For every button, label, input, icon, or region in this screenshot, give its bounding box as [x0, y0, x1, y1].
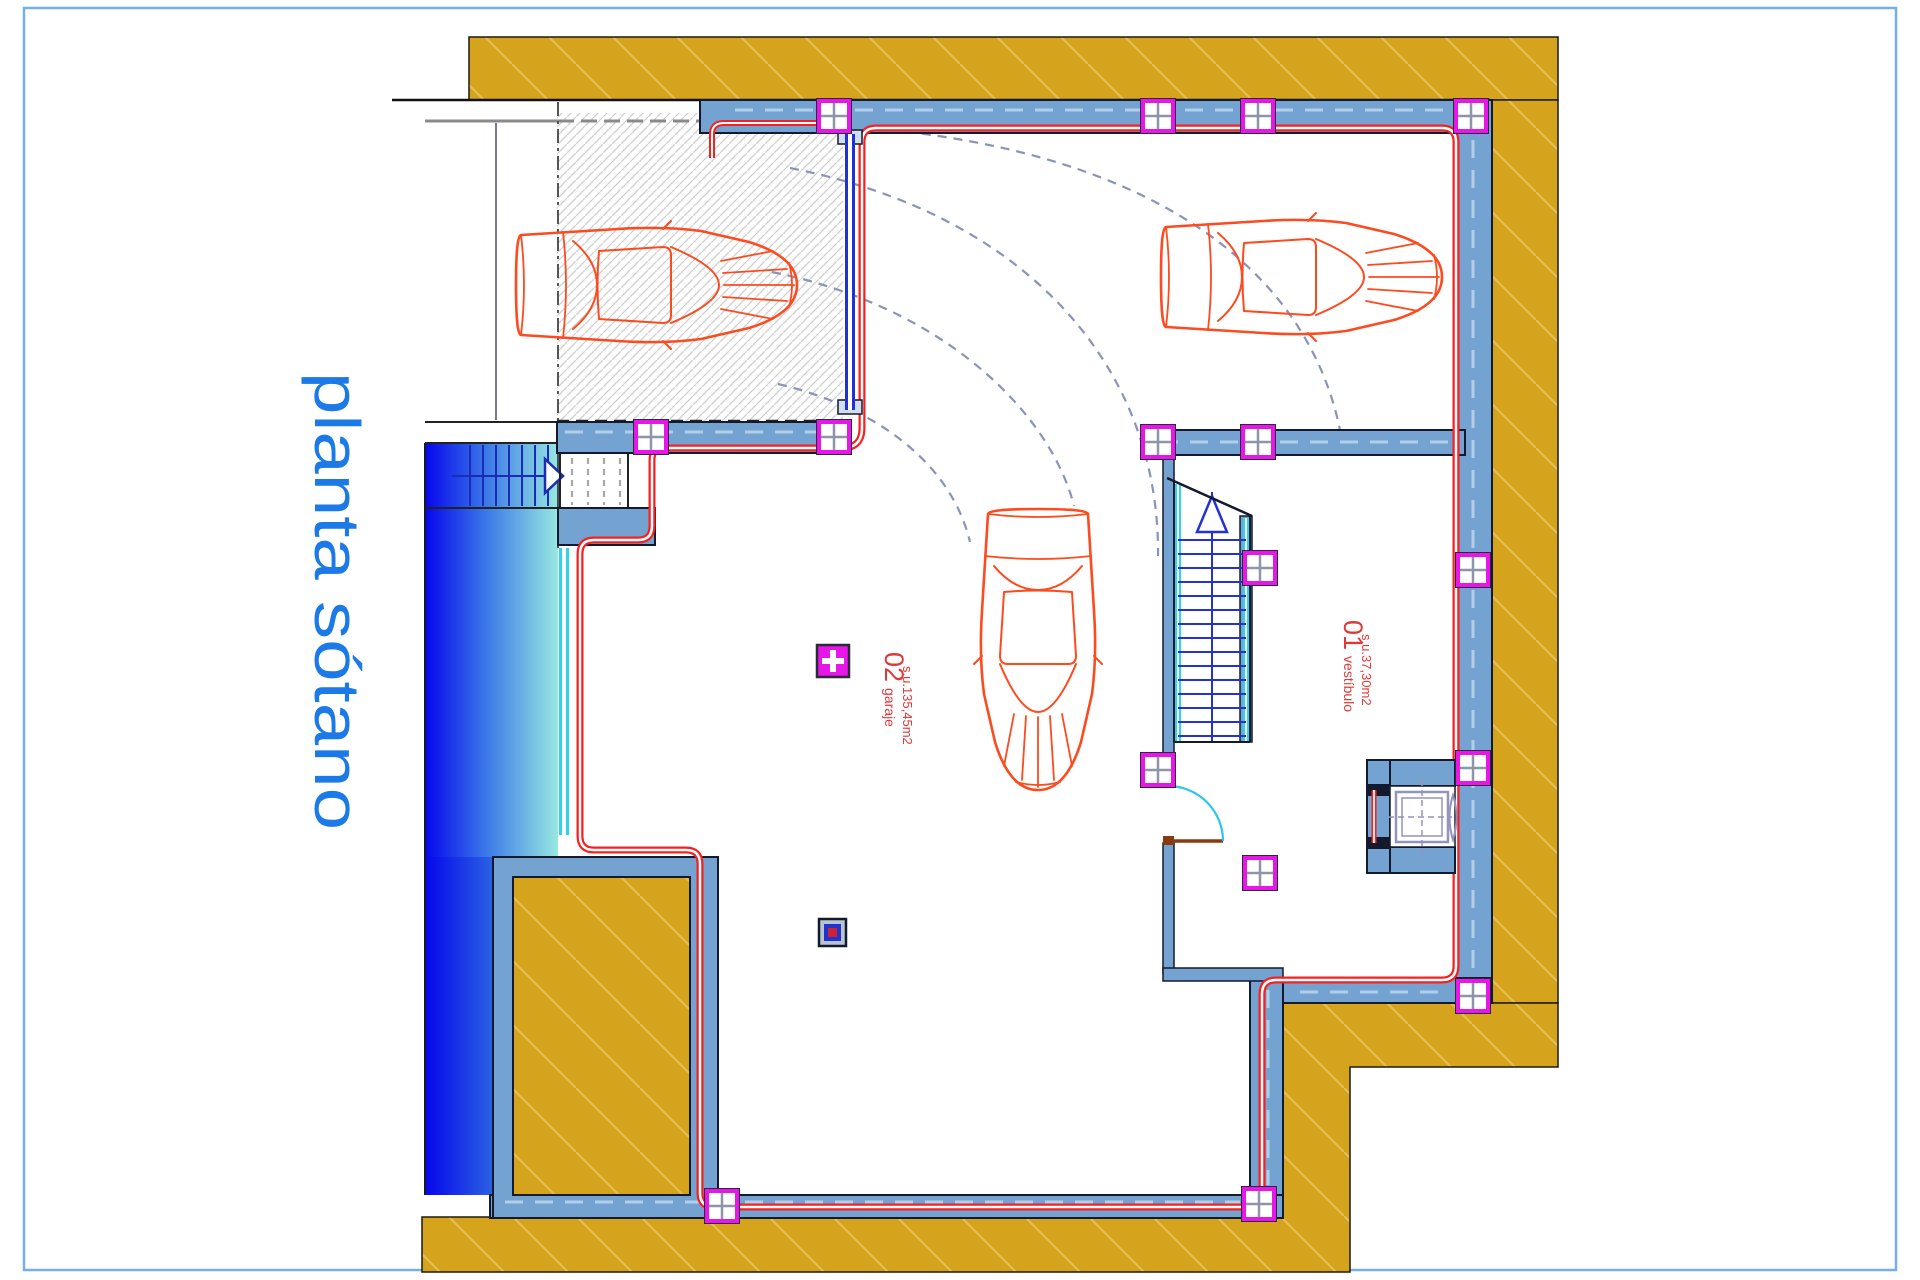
- room-label-vestibulo: 01vestíbulos.u.37,30m2: [1338, 620, 1374, 712]
- retaining-wall-right: [1490, 100, 1558, 1003]
- pool-gradient-upper: [425, 443, 558, 857]
- pool-gradient-lower: [425, 857, 493, 1195]
- retaining-wall-top: [469, 37, 1558, 100]
- wall-partition-lower: [1163, 968, 1283, 981]
- elevator: [1367, 760, 1457, 873]
- floor-plan-page: planta sótano: [0, 0, 1920, 1280]
- vestibule-wall-west-lower: [1163, 843, 1174, 973]
- vestibule-wall-west: [1163, 455, 1174, 785]
- column: [1456, 553, 1490, 587]
- column-freestanding: [817, 645, 849, 677]
- column: [1242, 1187, 1276, 1221]
- plan-title: planta sótano: [301, 372, 373, 830]
- column: [1141, 425, 1175, 459]
- retaining-wall-southwest-gold: [513, 877, 690, 1195]
- plan-drawing: planta sótano: [0, 0, 1920, 1280]
- column: [1456, 751, 1490, 785]
- column: [1456, 979, 1490, 1013]
- column: [634, 420, 668, 454]
- column: [817, 420, 851, 454]
- floor-drain: [819, 919, 846, 946]
- column: [1241, 425, 1275, 459]
- driveway-hatch: [557, 113, 843, 421]
- column: [1141, 99, 1175, 133]
- column: [705, 1189, 739, 1223]
- page-background: [0, 0, 1920, 1280]
- column: [1241, 99, 1275, 133]
- column: [1141, 753, 1175, 787]
- column: [1454, 99, 1488, 133]
- column: [1243, 856, 1277, 890]
- column: [1243, 551, 1277, 585]
- column: [817, 99, 851, 133]
